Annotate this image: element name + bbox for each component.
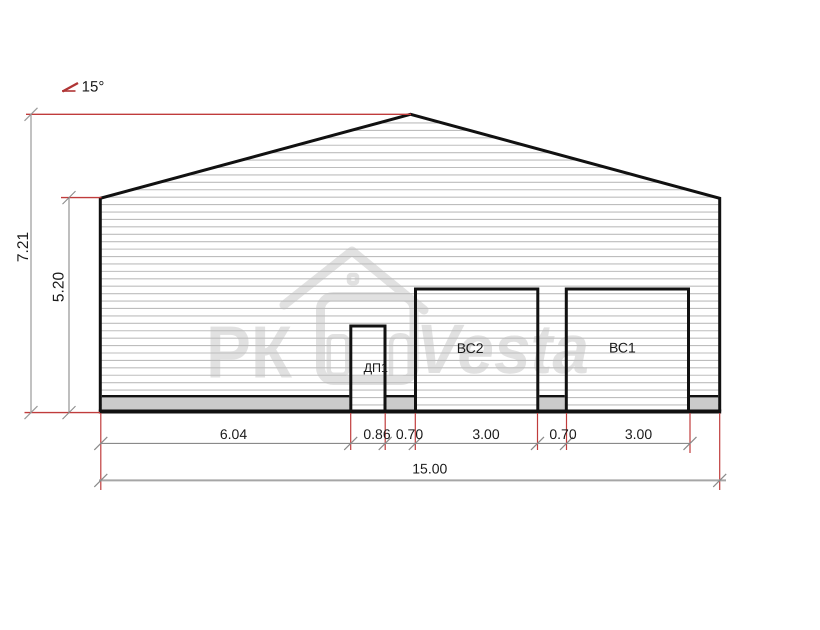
svg-text:0.86: 0.86 bbox=[363, 426, 390, 442]
svg-text:ДП1: ДП1 bbox=[364, 361, 388, 375]
svg-text:15.00: 15.00 bbox=[412, 461, 447, 477]
svg-text:ВС2: ВС2 bbox=[457, 340, 484, 356]
svg-text:0.70: 0.70 bbox=[549, 426, 576, 442]
svg-text:0.70: 0.70 bbox=[396, 426, 423, 442]
svg-text:6.04: 6.04 bbox=[220, 426, 247, 442]
svg-text:Vesta: Vesta bbox=[416, 310, 589, 388]
svg-text:5.20: 5.20 bbox=[51, 272, 68, 303]
svg-text:3.00: 3.00 bbox=[625, 426, 652, 442]
svg-text:15°: 15° bbox=[82, 79, 105, 96]
svg-text:7.21: 7.21 bbox=[15, 232, 32, 262]
svg-text:3.00: 3.00 bbox=[472, 426, 499, 442]
svg-text:ВС1: ВС1 bbox=[609, 340, 636, 356]
